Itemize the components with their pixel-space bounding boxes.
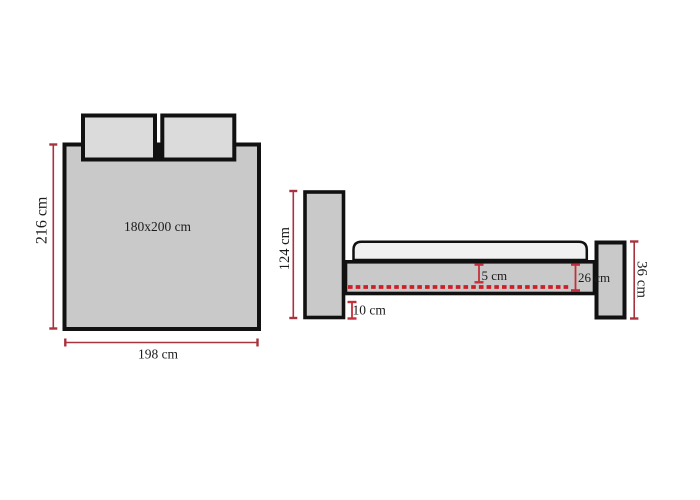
svg-text:26 cm: 26 cm bbox=[578, 270, 610, 285]
svg-text:124 cm: 124 cm bbox=[277, 226, 293, 270]
svg-text:198 cm: 198 cm bbox=[138, 347, 179, 362]
svg-text:10 cm: 10 cm bbox=[353, 302, 387, 317]
svg-text:36 cm: 36 cm bbox=[633, 261, 649, 298]
svg-text:5 cm: 5 cm bbox=[482, 268, 508, 283]
svg-text:180x200 cm: 180x200 cm bbox=[124, 219, 192, 234]
svg-text:216 cm: 216 cm bbox=[34, 196, 51, 244]
